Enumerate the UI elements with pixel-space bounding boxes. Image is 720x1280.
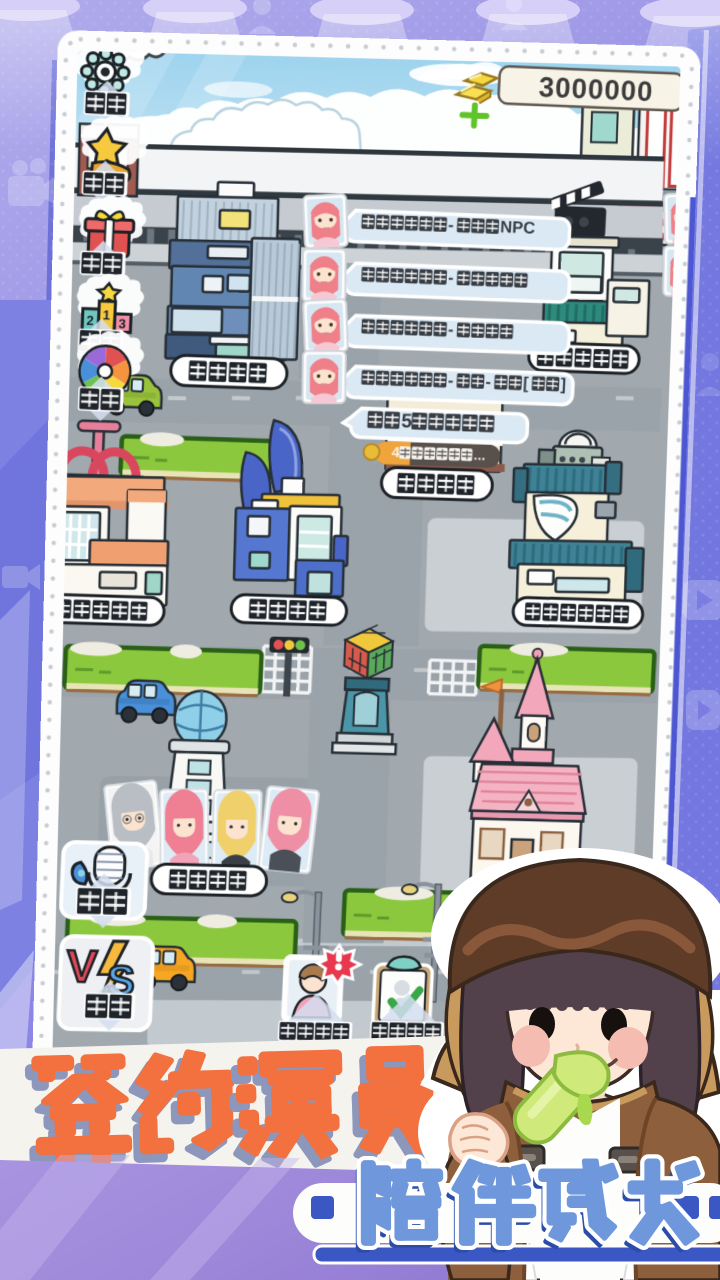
- svg-text:1: 1: [103, 308, 111, 323]
- svg-text:-: -: [448, 215, 454, 234]
- svg-text:3000000: 3000000: [538, 72, 654, 108]
- svg-text:...: ...: [473, 448, 486, 464]
- svg-text:V: V: [66, 941, 99, 992]
- svg-text:]: ]: [560, 375, 566, 394]
- svg-text:-: -: [485, 373, 491, 392]
- svg-text:-: -: [448, 371, 454, 390]
- svg-text:-: -: [448, 320, 454, 339]
- svg-text:2: 2: [86, 313, 94, 328]
- svg-text:NPC: NPC: [500, 218, 536, 238]
- svg-text:-: -: [448, 268, 454, 287]
- svg-text:3: 3: [118, 316, 126, 331]
- svg-text:5: 5: [401, 410, 413, 432]
